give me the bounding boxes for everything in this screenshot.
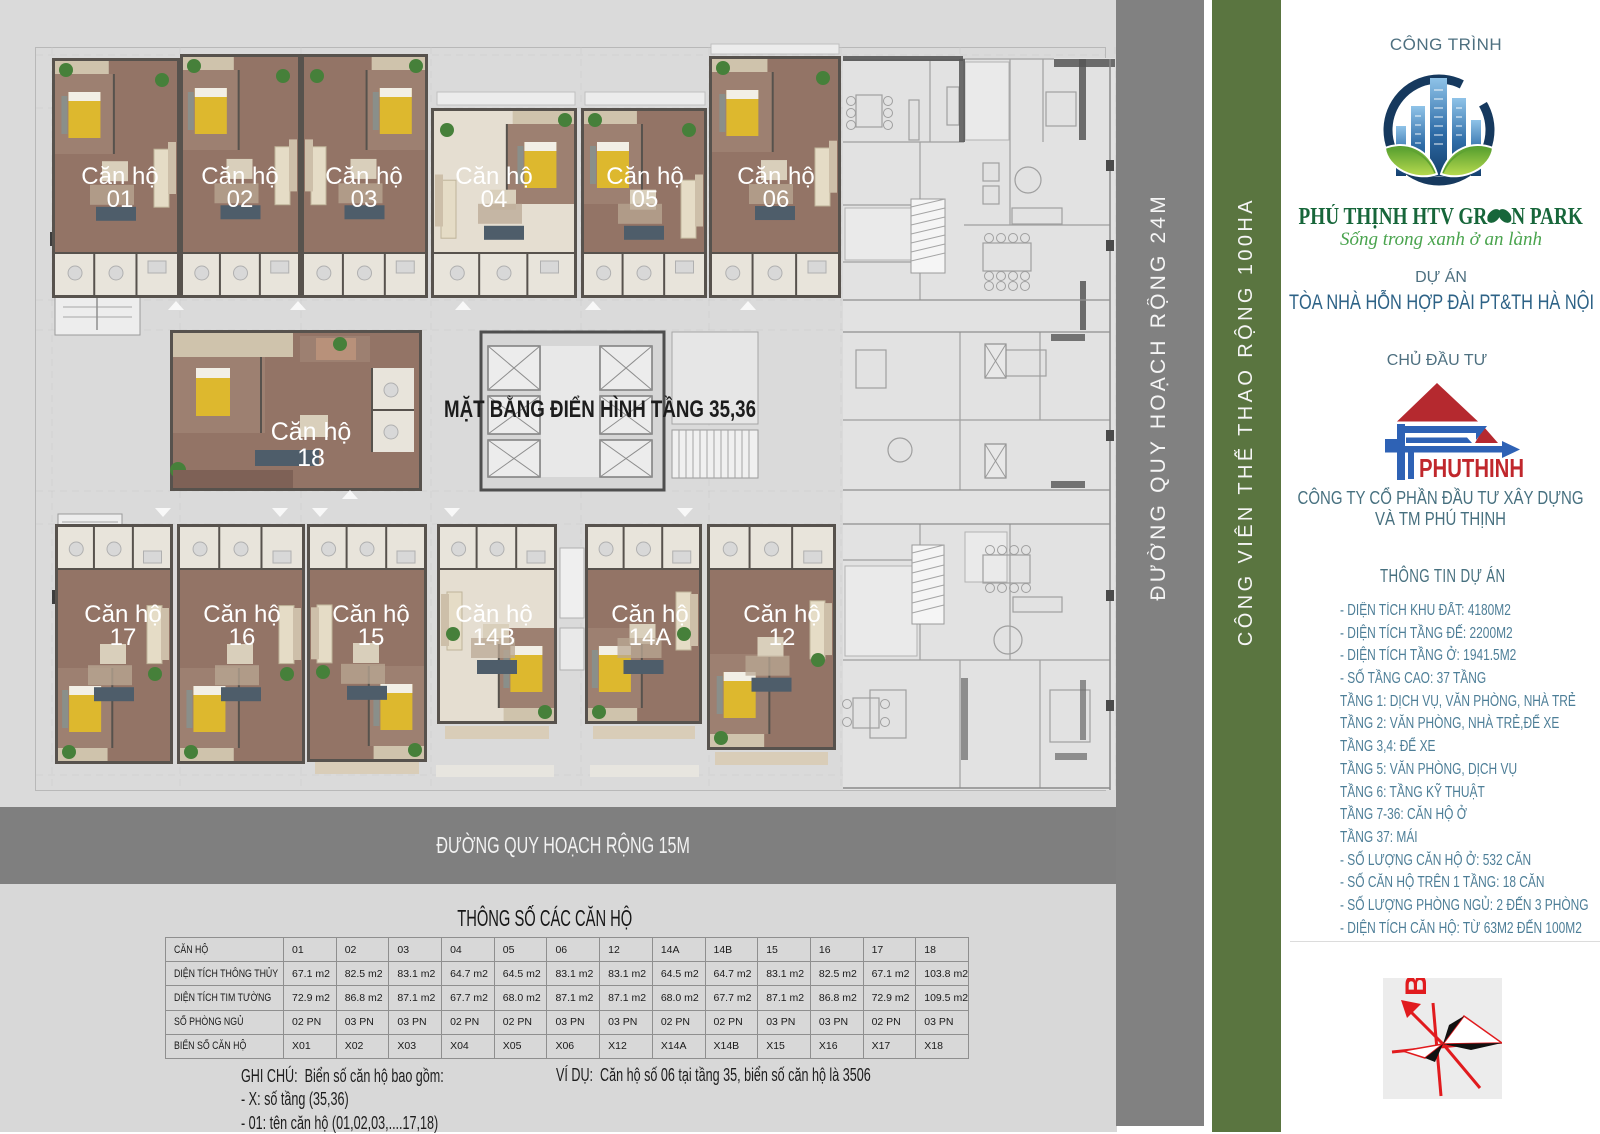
svg-text:12: 12 [769, 624, 796, 651]
svg-text:16: 16 [229, 624, 256, 651]
svg-text:06: 06 [763, 186, 790, 213]
svg-text:Căn hộ: Căn hộ [271, 418, 352, 446]
svg-text:15: 15 [358, 624, 385, 651]
svg-text:14B: 14B [473, 624, 516, 651]
svg-text:PHUTHINH: PHUTHINH [1419, 453, 1524, 483]
svg-text:B: B [1400, 978, 1433, 996]
svg-text:05: 05 [632, 186, 659, 213]
svg-text:MẶT BẰNG ĐIỂN HÌNH TẦNG 35,36: MẶT BẰNG ĐIỂN HÌNH TẦNG 35,36 [444, 395, 756, 423]
svg-text:03: 03 [351, 186, 378, 213]
svg-text:02: 02 [227, 186, 254, 213]
svg-text:18: 18 [297, 444, 325, 472]
svg-text:17: 17 [110, 624, 137, 651]
svg-text:01: 01 [107, 186, 134, 213]
svg-text:04: 04 [481, 186, 508, 213]
svg-text:14A: 14A [629, 624, 672, 651]
